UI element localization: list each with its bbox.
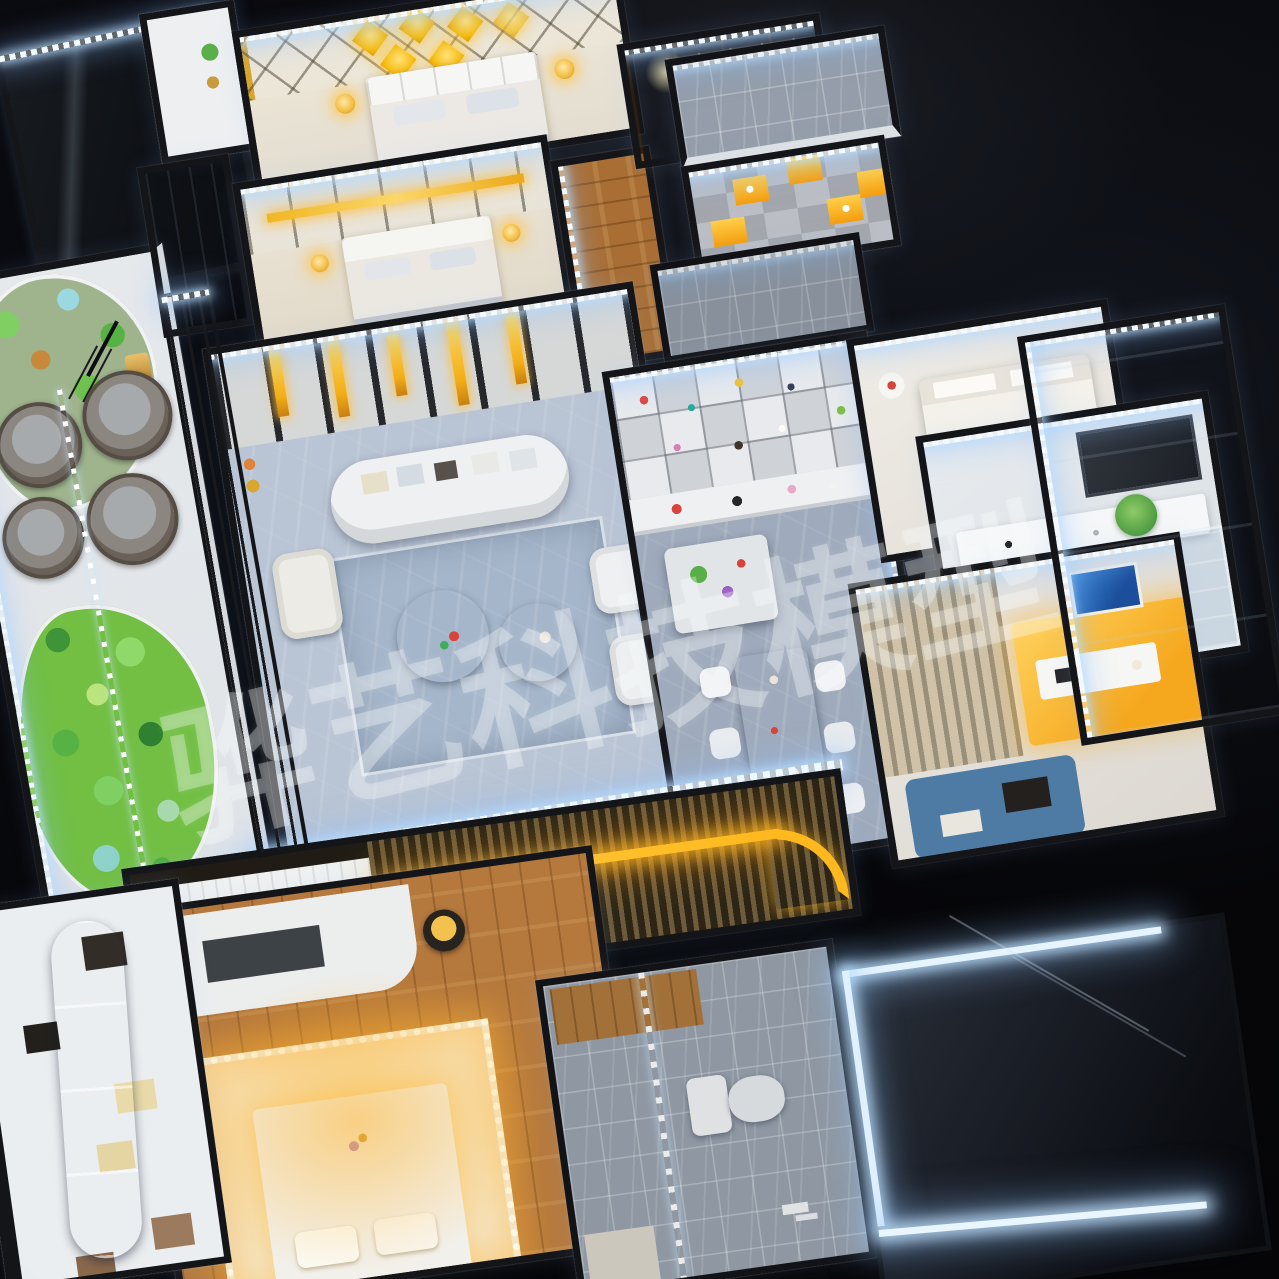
pillow — [465, 87, 519, 115]
skylight-led-edge-bottom — [879, 1201, 1207, 1237]
lower-bathroom — [535, 939, 877, 1279]
toilet-bowl — [726, 1072, 788, 1125]
glass-scratch-line — [1012, 956, 1186, 1058]
toilet-tank — [685, 1074, 733, 1137]
model-photo-canvas: 骅艺科技模型 — [0, 0, 1279, 1279]
bedside-lamp — [334, 92, 357, 115]
fruit-plate-decor — [877, 371, 907, 401]
glass-skylight — [836, 912, 1272, 1279]
skylight-led-edge-top — [842, 926, 1162, 978]
pillow — [392, 98, 446, 126]
rolled-blue-fabric-sofa — [49, 918, 144, 1260]
wood-door-leaf — [549, 969, 703, 1045]
bedside-lamp — [310, 253, 331, 274]
pillow — [363, 256, 411, 281]
bedside-lamp — [553, 58, 576, 81]
pillow — [429, 246, 477, 271]
kitchen-island — [663, 533, 779, 634]
dining-chair-set — [698, 665, 732, 699]
shower-faucet — [782, 1202, 809, 1216]
bedside-lamp — [501, 223, 522, 244]
slat-accent-wall — [856, 568, 1024, 778]
threshold-mat — [584, 1225, 661, 1279]
armchair — [270, 546, 345, 641]
